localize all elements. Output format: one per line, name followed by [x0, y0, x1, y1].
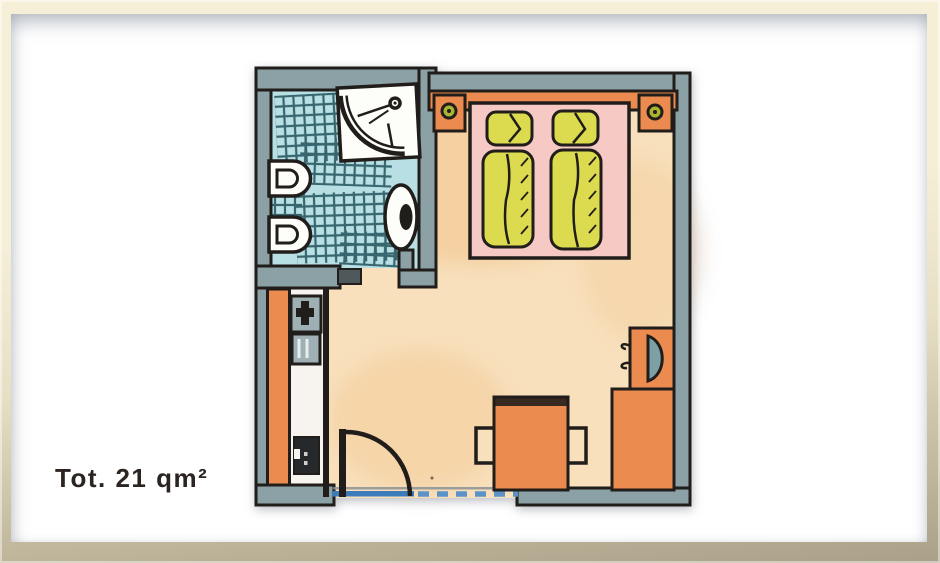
minibar-icon: [291, 296, 321, 332]
rack-icon: [292, 334, 320, 364]
window-sill-line: [333, 487, 517, 490]
toilet-icon: [269, 217, 311, 252]
chair-armrest-right: [567, 428, 586, 463]
wardrobe: [268, 289, 290, 485]
pillow: [487, 112, 532, 145]
closet-partition-line: [323, 288, 329, 497]
framed-floor-plan-photo: { "caption": { "text": "Tot. 21 qm²", "a…: [0, 0, 940, 563]
washbasin-icon: [385, 185, 417, 249]
pillow: [553, 111, 598, 145]
lamp-icon: [648, 105, 662, 119]
wall-top: [429, 73, 690, 91]
duvet: [551, 150, 601, 249]
duvet: [483, 151, 533, 247]
chair-seat: [494, 397, 568, 490]
chair: [476, 397, 586, 490]
sliding-door-leaf: [338, 269, 361, 284]
wall-corridor-bottom: [256, 485, 334, 505]
chair-armrest-left: [476, 428, 495, 463]
shower-icon: [337, 84, 420, 161]
lamp-icon: [442, 104, 456, 118]
wall-divider-foot: [399, 270, 436, 287]
chair-back: [494, 397, 568, 406]
area-caption: Tot. 21 qm²: [55, 463, 208, 494]
wall-bathroom-bottom: [256, 266, 340, 288]
desk: [612, 389, 674, 490]
bidet-icon: [269, 161, 311, 196]
tv-icon: [622, 328, 674, 389]
safe-icon: [294, 437, 319, 474]
wall-right: [674, 73, 690, 505]
door-leaf: [339, 429, 346, 497]
